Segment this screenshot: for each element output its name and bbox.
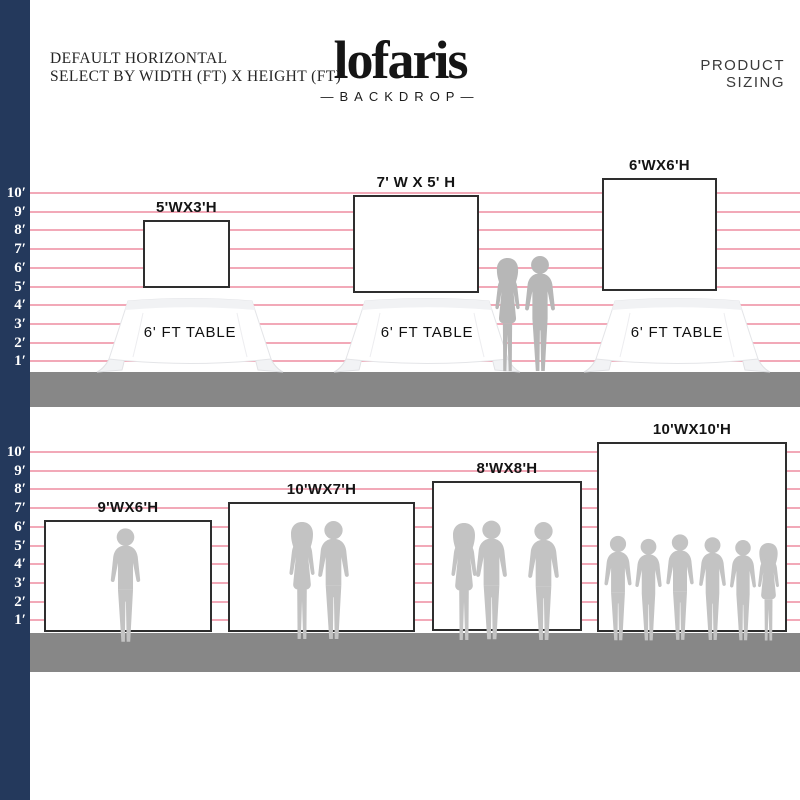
backdrop-10x10-label: 10'WX10'H	[597, 421, 787, 439]
page-title: PRODUCT SIZING	[640, 57, 785, 91]
scale-foot-label: 7′	[0, 240, 26, 258]
brand-name: lofaris	[250, 34, 550, 86]
floor-strip-top	[30, 372, 800, 407]
scale-foot-label: 4′	[0, 555, 26, 573]
scale-foot-label: 5′	[0, 278, 26, 296]
table-3-label: 6' FT TABLE	[582, 324, 772, 342]
brand-logo: lofaris —BACKDROP—	[250, 34, 550, 104]
backdrop-7x5	[353, 195, 479, 293]
scale-foot-label: 9′	[0, 203, 26, 221]
backdrop-7x5-label: 7' W X 5' H	[353, 174, 479, 192]
scale-foot-label: 5′	[0, 537, 26, 555]
backdrop-6x6	[602, 178, 717, 291]
scale-foot-label: 3′	[0, 574, 26, 592]
backdrop-5x3-label: 5'WX3'H	[143, 199, 230, 217]
brand-subtitle: —BACKDROP—	[250, 89, 550, 104]
man-silhouette	[521, 521, 566, 643]
scale-foot-label: 1′	[0, 352, 26, 370]
table-1-label: 6' FT TABLE	[95, 324, 285, 342]
scale-foot-label: 2′	[0, 334, 26, 352]
scale-foot-label: 10′	[0, 443, 26, 461]
scale-foot-label: 9′	[0, 462, 26, 480]
man-silhouette	[469, 519, 514, 643]
ruler-sidebar	[0, 0, 30, 800]
man-silhouette	[104, 527, 147, 645]
backdrop-10x7-label: 10'WX7'H	[228, 481, 415, 499]
scale-foot-label: 4′	[0, 296, 26, 314]
woman-silhouette	[750, 543, 787, 643]
scale-foot-label: 7′	[0, 499, 26, 517]
man-silhouette	[311, 520, 356, 642]
backdrop-5x3	[143, 220, 230, 288]
backdrop-8x8-label: 8'WX8'H	[432, 460, 582, 478]
scale-foot-label: 2′	[0, 593, 26, 611]
product-sizing-infographic: DEFAULT HORIZONTAL SELECT BY WIDTH (FT) …	[0, 0, 800, 800]
scale-foot-label: 8′	[0, 480, 26, 498]
backdrop-6x6-label: 6'WX6'H	[602, 157, 717, 175]
table-2-label: 6' FT TABLE	[332, 324, 522, 342]
man-silhouette	[518, 255, 562, 374]
scale-foot-label: 6′	[0, 518, 26, 536]
scale-foot-label: 6′	[0, 259, 26, 277]
scale-foot-label: 8′	[0, 221, 26, 239]
scale-foot-label: 3′	[0, 315, 26, 333]
scale-foot-label: 10′	[0, 184, 26, 202]
backdrop-9x6-label: 9'WX6'H	[44, 499, 212, 517]
scale-foot-label: 1′	[0, 611, 26, 629]
